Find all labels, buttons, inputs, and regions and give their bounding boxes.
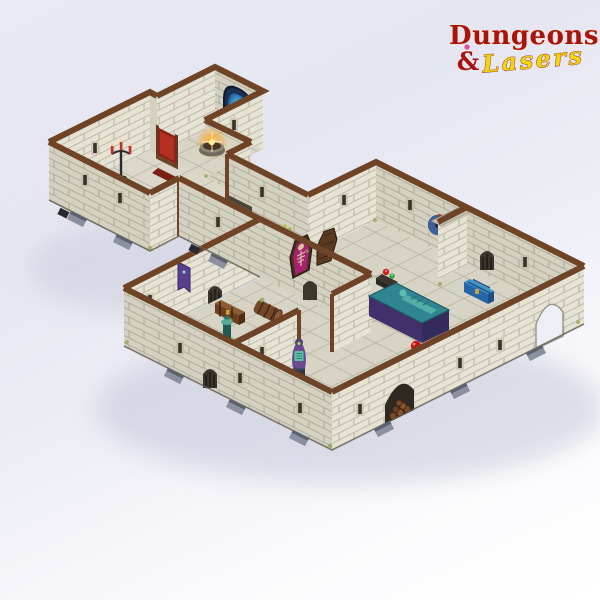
arrow-slit-window [340,193,348,207]
arrow-slit-window [91,141,99,155]
arrow-slit-window [406,198,414,212]
arrow-slit-window [521,255,529,269]
arrow-slit-window [176,341,184,355]
arrow-slit-window [258,185,266,199]
arrow-slit-window [456,356,464,370]
arched-niche [303,281,317,300]
brand-logo: Dungeons & Lasers [449,21,599,79]
arrow-slit-window [116,191,124,205]
barred-niche [203,369,217,388]
arrow-slit-window [236,371,244,385]
dungeon-illustration: Dungeons & Lasers [0,0,600,600]
logo-ampersand: & [457,47,480,76]
product-photo: Dungeons & Lasers [0,0,600,600]
green-vial-decor [283,224,287,228]
arrow-slit-window [81,173,89,187]
barred-niche [480,251,494,270]
throne-room-north-stub-wall [150,92,157,154]
arrow-slit-window [296,401,304,415]
arrow-slit-window [214,215,222,229]
arrow-slit-window [496,338,504,352]
arrow-slit-window [356,402,364,416]
